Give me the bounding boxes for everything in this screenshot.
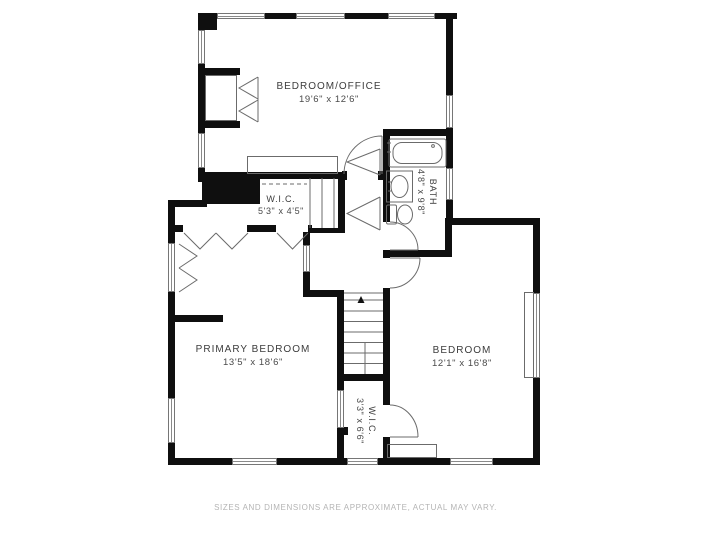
floor-plan: BEDROOM/OFFICE 19'6" x 12'6" W.I.C. 5'3"… (0, 0, 711, 533)
room-dims: 13'5" x 18'6" (196, 357, 311, 368)
floorplan-linework (0, 0, 711, 533)
dresser (248, 157, 338, 174)
door-swing-arc (390, 405, 418, 437)
door-swing-arc (390, 222, 418, 250)
room-dims: 5'3" x 4'5" (258, 206, 304, 216)
bathtub-icon (387, 139, 446, 167)
door-swing-arc (390, 258, 420, 288)
room-dims: 4'8" x 9'8" (416, 169, 426, 215)
bifold-door-icon (184, 233, 248, 249)
toilet-icon (387, 205, 413, 224)
bedroom-label: BEDROOM 12'1" x 16'8" (432, 345, 492, 369)
bifold-door-icon (277, 233, 308, 249)
sink-icon (387, 171, 413, 202)
wic-upper-label: W.I.C. 5'3" x 4'5" (258, 194, 304, 216)
primary-bedroom-label: PRIMARY BEDROOM 13'5" x 18'6" (196, 344, 311, 368)
bath-label: BATH 4'8" x 9'8" (416, 169, 438, 215)
room-name: W.I.C. (258, 194, 304, 204)
room-name: PRIMARY BEDROOM (196, 344, 311, 355)
bifold-door-icon (347, 149, 380, 175)
casement-icon (179, 244, 197, 292)
room-name: BEDROOM (432, 345, 492, 356)
bedroom-office-label: BEDROOM/OFFICE 19'6" x 12'6" (276, 81, 381, 105)
disclaimer-text: SIZES AND DIMENSIONS ARE APPROXIMATE, AC… (214, 503, 497, 512)
room-dims: 19'6" x 12'6" (276, 94, 381, 105)
wic-lower-label: W.I.C. 3'3" x 6'6" (355, 398, 377, 444)
stairs (344, 293, 383, 374)
room-dims: 12'1" x 16'8" (432, 358, 492, 369)
room-name: BATH (428, 169, 438, 215)
shelf-lines (310, 178, 334, 228)
room-name: BEDROOM/OFFICE (276, 81, 381, 92)
room-name: W.I.C. (367, 398, 377, 444)
window-seat (388, 445, 437, 458)
window-frame (525, 293, 534, 378)
bifold-door-icon (347, 197, 380, 230)
closet (206, 76, 259, 123)
room-dims: 3'3" x 6'6" (355, 398, 365, 444)
